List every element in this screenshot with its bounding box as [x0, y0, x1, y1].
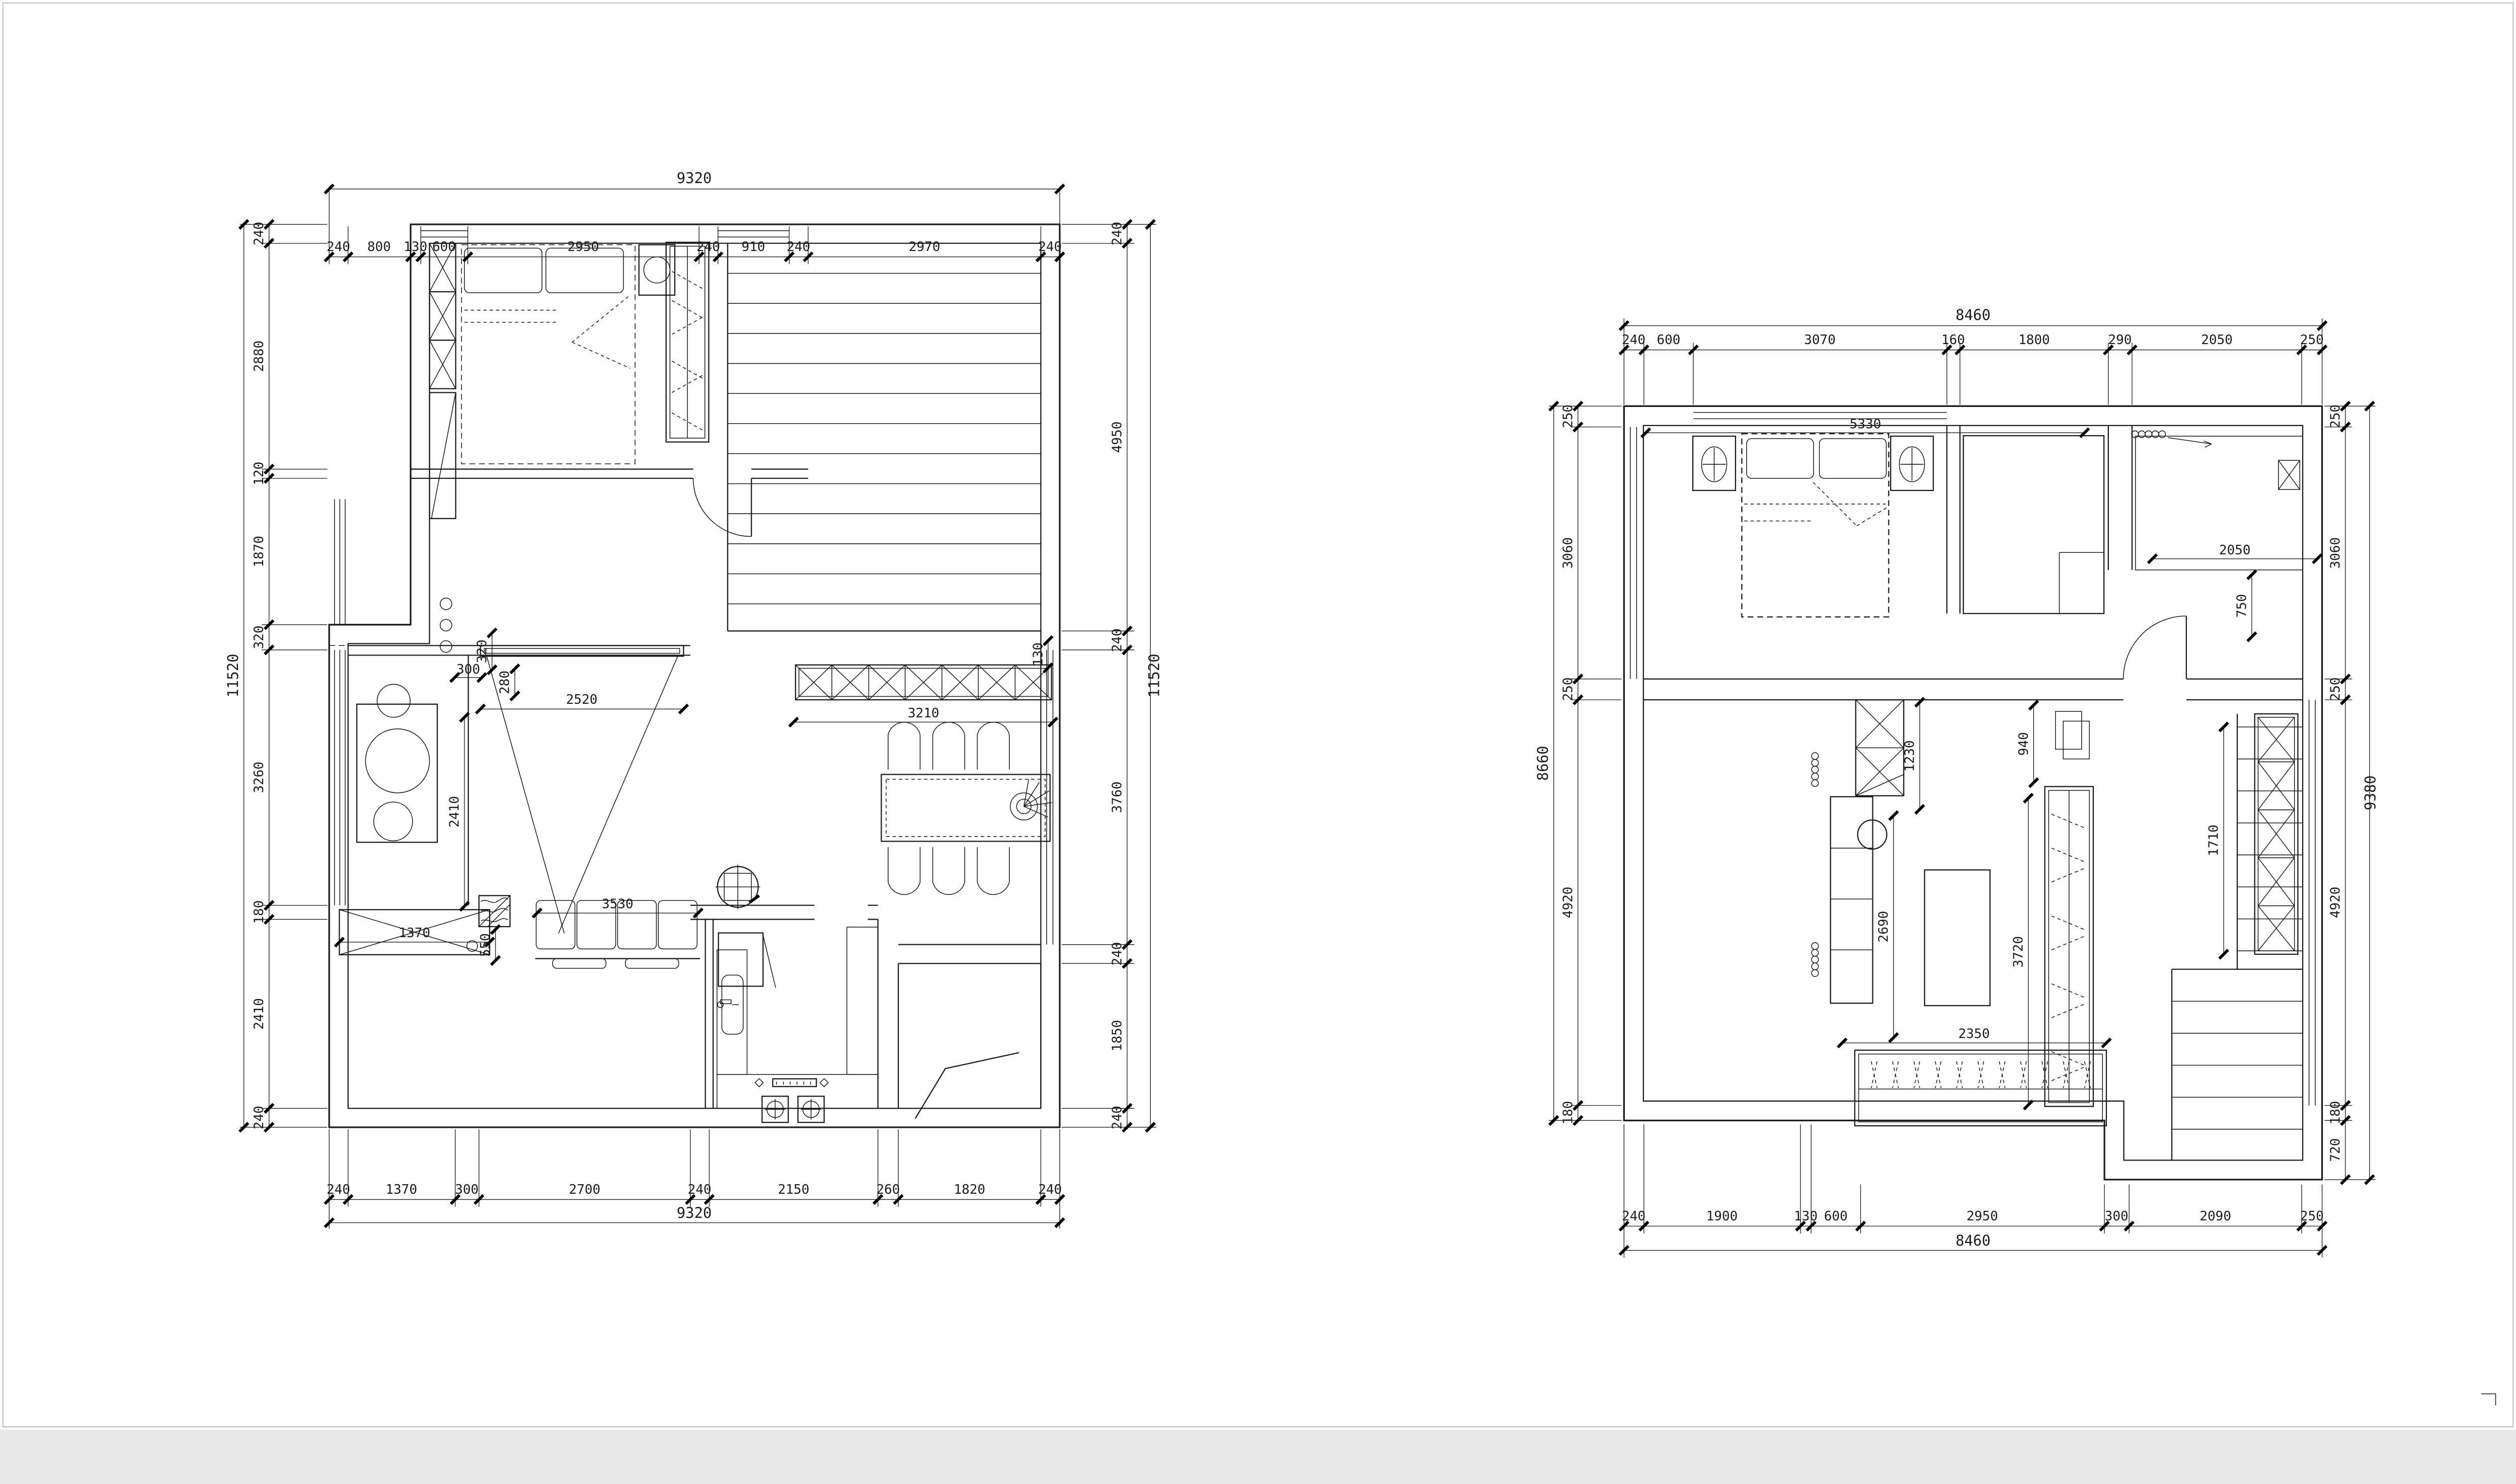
dim-label: 3530	[602, 896, 634, 912]
dim-total-label: 8660	[1534, 746, 1551, 781]
dim-label: 2880	[252, 341, 267, 372]
dim-label: 2520	[566, 692, 598, 707]
dim-label: 250	[1560, 404, 1576, 428]
p1-hanger-wardrobe-icon	[666, 242, 709, 442]
p1-kitchen-icon	[717, 927, 878, 1122]
p2-bottom-dim-chain: 240 1900 130 600 2950 300 2090 250 8460	[1620, 1124, 2327, 1258]
dim-total-label: 11520	[224, 653, 242, 697]
dim-total-label: 8460	[1955, 1232, 1991, 1249]
dim-label: 250	[2328, 677, 2343, 701]
dim-label: 910	[742, 239, 765, 255]
p2-closet-strip-icon	[2045, 787, 2093, 1107]
dim-label: 130	[1031, 642, 1046, 666]
dim-label: 180	[252, 900, 267, 924]
dim-label: 2970	[909, 239, 940, 255]
dim-label: 250	[1560, 677, 1576, 701]
dim-label: 280	[498, 671, 513, 694]
dim-label: 240	[1622, 1209, 1645, 1224]
p2-wardrobe-x-column-icon	[2255, 714, 2298, 954]
dim-label: 240	[1110, 628, 1125, 652]
dim-label: 240	[327, 1182, 350, 1197]
dim-label: 180	[2328, 1101, 2343, 1124]
p2-table-icon	[1925, 870, 1990, 1006]
p1-dining-table-icon	[881, 722, 1050, 895]
dim-label: 130	[1794, 1209, 1818, 1224]
p1-bathroom-fixtures-icon	[357, 684, 437, 842]
dim-label: 240	[688, 1182, 712, 1197]
dim-label: 240	[1110, 942, 1125, 965]
p1-top-dim-chain: 240 800 130 600 2950 240 910 240 2970 24…	[325, 170, 1064, 264]
dim-label: 800	[367, 239, 391, 255]
dim-label: 720	[2328, 1138, 2343, 1162]
dim-label: 120	[252, 462, 267, 485]
dim-label: 130	[404, 239, 427, 255]
dim-label: 240	[1622, 333, 1645, 348]
p1-walls	[329, 224, 1060, 1127]
dim-total-label: 8460	[1955, 306, 1991, 323]
dim-label: 240	[1110, 222, 1125, 245]
p1-nightstand-icon	[639, 245, 675, 295]
p1-plant-icon	[1010, 779, 1052, 820]
p2-coil-left-icon	[1812, 753, 1818, 976]
dim-total-label: 9380	[2362, 775, 2379, 810]
p1-bedroom-door-icon	[693, 478, 752, 537]
dim-label: 750	[2234, 594, 2249, 618]
dim-label: 550	[478, 933, 493, 957]
p2-walls	[1624, 406, 2322, 1180]
dim-label: 3070	[1804, 333, 1836, 348]
dim-total-label: 11520	[1145, 653, 1162, 697]
p2-top-right-room	[2132, 431, 2303, 569]
dim-label: 250	[2300, 333, 2324, 348]
dim-label: 2350	[1958, 1027, 1990, 1042]
dim-label: 250	[2328, 404, 2343, 428]
p2-desk-icon	[2056, 711, 2089, 759]
dim-label: 5330	[1850, 417, 1881, 432]
dim-label: 2950	[568, 239, 599, 255]
dim-label: 1800	[2018, 333, 2050, 348]
sheet-border	[3, 3, 2513, 1427]
dim-label: 940	[2016, 732, 2031, 756]
p1-exhaust-fan-icon	[716, 865, 760, 910]
dim-label: 600	[1824, 1209, 1848, 1224]
dim-label: 240	[1038, 1182, 1062, 1197]
p1-bottom-dim-chain: 240 1370 300 2700 240 2150 260 1820 240 …	[325, 1129, 1064, 1228]
p2-coil-symbol-icon	[2132, 431, 2212, 447]
dim-label: 300	[455, 1182, 479, 1197]
dim-label: 240	[696, 239, 720, 255]
dim-label: 1710	[2207, 825, 2222, 856]
dim-label: 4920	[2328, 887, 2343, 919]
dim-label: 240	[327, 239, 350, 255]
dim-label: 2050	[2219, 543, 2251, 558]
dim-label: 4950	[1110, 422, 1125, 453]
dim-label: 160	[1941, 333, 1965, 348]
dim-label: 3760	[1110, 781, 1125, 813]
dim-label: 240	[787, 239, 810, 255]
dim-label: 2700	[569, 1182, 601, 1197]
dim-label: 2050	[2201, 333, 2233, 348]
dim-label: 320	[252, 625, 267, 649]
dim-total-label: 9320	[677, 170, 712, 187]
dim-label: 180	[1560, 1101, 1576, 1124]
dim-label: 320	[475, 639, 490, 663]
dim-label: 240	[252, 1106, 267, 1129]
dim-label: 3210	[908, 706, 939, 721]
p2-right-dim-chain: 250 3060 250 4920 180 720 9380	[2324, 402, 2379, 1184]
floor-plan-2: 240 600 3070 160 1800 290 2050 250 8460 …	[1534, 306, 2379, 1258]
dim-label: 240	[1038, 239, 1062, 255]
dim-label: 2690	[1876, 911, 1891, 943]
p1-inner-dims: 320 300 280 2520 130 2410 1370 3530 3210…	[335, 629, 1057, 965]
p2-counter-icon	[1831, 797, 1887, 1003]
sheet-corner-mark	[2481, 1394, 2496, 1406]
dim-label: 2090	[2199, 1209, 2231, 1224]
dim-label: 4920	[1560, 887, 1576, 919]
dim-label: 2410	[447, 796, 462, 828]
p1-window-icon	[335, 231, 1053, 945]
dim-label: 3060	[2328, 537, 2343, 569]
p1-wall-hooks-icon	[440, 598, 452, 652]
dim-label: 1820	[954, 1182, 985, 1197]
dim-label: 1230	[1902, 740, 1917, 772]
dim-label: 300	[456, 662, 480, 677]
p2-left-dim-chain: 250 3060 250 4920 180 8660	[1534, 402, 1621, 1125]
dim-label: 300	[2105, 1209, 2129, 1224]
dim-label: 600	[432, 239, 456, 255]
dim-label: 260	[876, 1182, 900, 1197]
p2-cabinet-1230-icon	[1856, 700, 1904, 796]
dim-label: 1370	[385, 1182, 417, 1197]
p1-wardrobe-icon	[430, 243, 456, 519]
dim-label: 3720	[2011, 936, 2026, 968]
dim-label: 3060	[1560, 537, 1576, 569]
p2-bed-icon	[1742, 434, 1889, 617]
p1-right-dim-chain: 240 4950 240 3760 240 1850 240 11520	[1062, 220, 1163, 1131]
floorplan-sheet: 240 800 130 600 2950 240 910 240 2970 24…	[0, 0, 2516, 1430]
p1-left-dim-chain: 240 2880 120 1870 320 3260 180 2410 240 …	[224, 220, 327, 1131]
p2-bottom-wardrobe-icon	[1855, 1050, 2106, 1126]
dim-label: 2150	[778, 1182, 810, 1197]
p2-top-dim-chain: 240 600 3070 160 1800 290 2050 250 8460	[1620, 306, 2327, 405]
p2-bedroom-door-icon	[2124, 616, 2186, 679]
dim-label: 240	[252, 222, 267, 245]
p2-closet-room	[1963, 436, 2104, 614]
floor-plan-1: 240 800 130 600 2950 240 910 240 2970 24…	[224, 170, 1162, 1228]
dim-label: 600	[1657, 333, 1681, 348]
dim-label: 240	[1110, 1106, 1125, 1129]
dim-label: 1870	[252, 536, 267, 567]
dim-label: 290	[2108, 333, 2132, 348]
dim-label: 3260	[252, 762, 267, 793]
p1-stairs-icon	[728, 243, 1041, 631]
dim-label: 1370	[399, 926, 430, 941]
dim-total-label: 9320	[677, 1204, 712, 1221]
dim-label: 1900	[1706, 1209, 1738, 1224]
dim-label: 1850	[1110, 1020, 1125, 1051]
dim-label: 2410	[252, 998, 267, 1030]
dim-label: 2950	[1967, 1209, 1998, 1224]
dim-label: 250	[2300, 1209, 2324, 1224]
p1-dining-cabinet-icon	[796, 665, 1052, 700]
p1-bed-icon	[461, 245, 635, 464]
